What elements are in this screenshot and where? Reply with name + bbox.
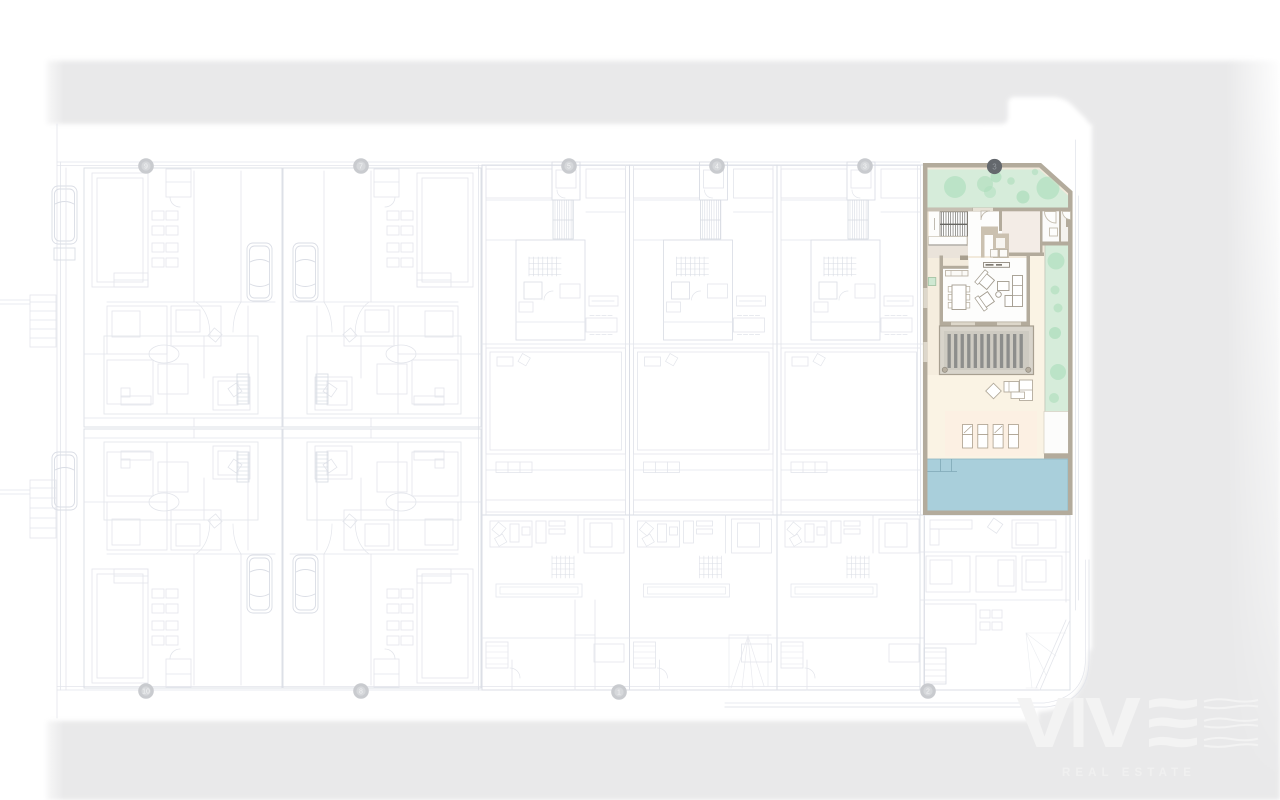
svg-text:5: 5 <box>567 164 571 171</box>
svg-text:8: 8 <box>359 689 363 696</box>
svg-text:1: 1 <box>617 690 621 697</box>
svg-text:2: 2 <box>926 689 930 696</box>
svg-text:3: 3 <box>863 164 867 171</box>
svg-text:4: 4 <box>715 164 719 171</box>
svg-text:10: 10 <box>142 689 150 696</box>
svg-text:9: 9 <box>144 164 148 171</box>
svg-text:7: 7 <box>359 164 363 171</box>
svg-text:3: 3 <box>992 162 997 171</box>
svg-text:REAL ESTATE: REAL ESTATE <box>1062 767 1196 779</box>
